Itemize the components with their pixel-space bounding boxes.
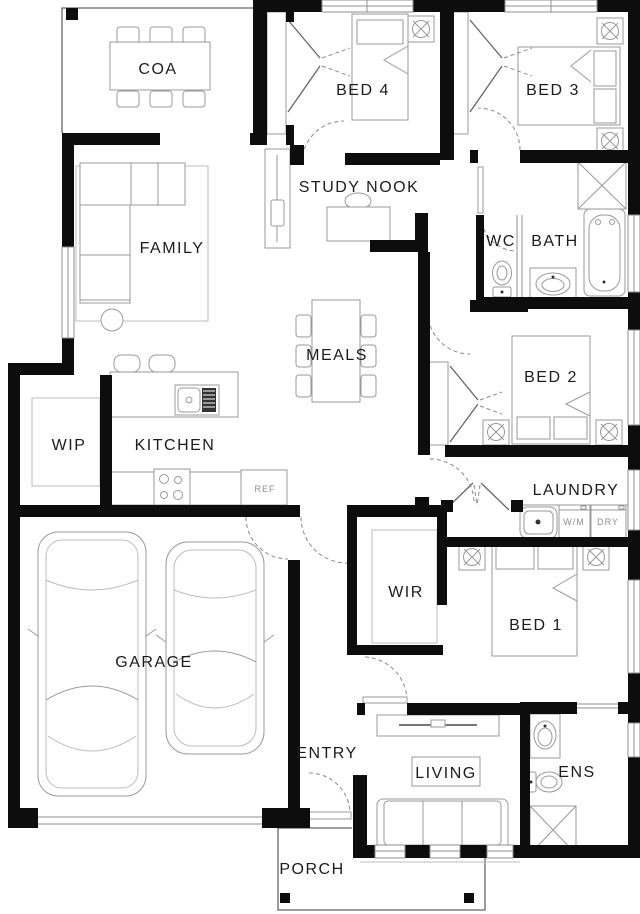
linen-bifold-doors — [445, 483, 509, 510]
bed4-robe — [267, 12, 350, 134]
front-door-leaf — [309, 812, 351, 819]
family-side-table — [101, 309, 123, 331]
bed2-bed — [512, 336, 590, 444]
room-label-wc: WC — [486, 233, 516, 250]
kitchen-sink — [175, 385, 219, 415]
front-door-swing — [309, 773, 350, 814]
garage-roller-door — [38, 817, 262, 824]
room-label-study-nook: STUDY NOOK — [299, 179, 420, 196]
master-door-leaf — [363, 697, 407, 703]
fridge-label: REF — [255, 484, 276, 494]
bathtub — [584, 209, 625, 296]
room-label-family: FAMILY — [140, 240, 205, 257]
bed3-door-swing — [478, 108, 520, 150]
master-door-swing — [363, 657, 407, 701]
wc-cavity-slider — [517, 215, 522, 302]
ens-cavity-slider — [577, 704, 618, 708]
living-tv-unit — [377, 715, 499, 736]
kitchen-stool — [114, 355, 140, 372]
bath-vanity — [530, 268, 576, 300]
living-window — [430, 845, 460, 858]
room-label-wir: WIR — [388, 584, 424, 601]
kitchen-stool — [149, 355, 175, 372]
porch-column — [280, 893, 290, 903]
bed2-door-swing — [428, 312, 470, 354]
bed4-bedside-table — [408, 16, 434, 42]
bed1-bed — [492, 538, 577, 656]
bed4-bed — [352, 14, 408, 120]
room-label-wip: WIP — [52, 437, 87, 454]
room-label-coa: COA — [138, 61, 177, 78]
living-window — [487, 845, 513, 858]
porch-column — [464, 893, 474, 903]
room-label-living: LIVING — [415, 765, 476, 782]
room-label-bed4: BED 4 — [336, 82, 390, 99]
room-label-bath: BATH — [531, 233, 578, 250]
garage-car-right — [156, 542, 274, 754]
family-window — [62, 247, 74, 338]
room-label-porch: PORCH — [279, 861, 344, 878]
hall-cabinet — [265, 149, 290, 248]
room-label-laundry: LAUNDRY — [533, 482, 620, 499]
room-label-meals: MEALS — [306, 347, 368, 364]
dryer-label: DRY — [597, 517, 619, 527]
floor-plan: COA BED 4 BED 3 STUDY NOOK FAMILY WC BAT… — [0, 0, 640, 914]
wc-toilet — [493, 261, 512, 297]
study-nook-desk — [327, 193, 390, 241]
coa-column — [66, 8, 78, 20]
kitchen-island — [110, 355, 238, 417]
ens-vanity — [530, 714, 560, 758]
room-label-bed1: BED 1 — [509, 617, 563, 634]
hall-door-swing — [301, 517, 347, 563]
laundry-tub — [520, 507, 557, 538]
laundry-door-swing — [430, 459, 474, 503]
bath-shower — [578, 162, 626, 209]
bed4-door-swing — [302, 121, 344, 163]
floor-plan-svg: COA BED 4 BED 3 STUDY NOOK FAMILY WC BAT… — [0, 0, 640, 914]
room-label-ens: ENS — [558, 764, 595, 781]
room-label-bed2: BED 2 — [524, 369, 578, 386]
room-label-entry: ENTRY — [296, 745, 357, 762]
living-window — [375, 845, 405, 858]
bed1-window — [628, 580, 640, 673]
cooktop — [154, 469, 190, 505]
ens-window — [628, 723, 640, 757]
bed2-window — [628, 330, 640, 425]
garage-door-swing — [246, 517, 288, 559]
bed4-window — [322, 0, 413, 12]
room-label-bed3: BED 3 — [526, 82, 580, 99]
room-label-garage: GARAGE — [115, 654, 192, 671]
laundry-window — [628, 470, 640, 530]
bed3-window — [505, 0, 597, 12]
wc-door-leaf — [478, 167, 483, 213]
washer-label: W/M — [563, 517, 585, 527]
room-label-kitchen: KITCHEN — [135, 437, 216, 454]
bath-window — [628, 215, 640, 292]
ens-toilet — [527, 772, 562, 792]
